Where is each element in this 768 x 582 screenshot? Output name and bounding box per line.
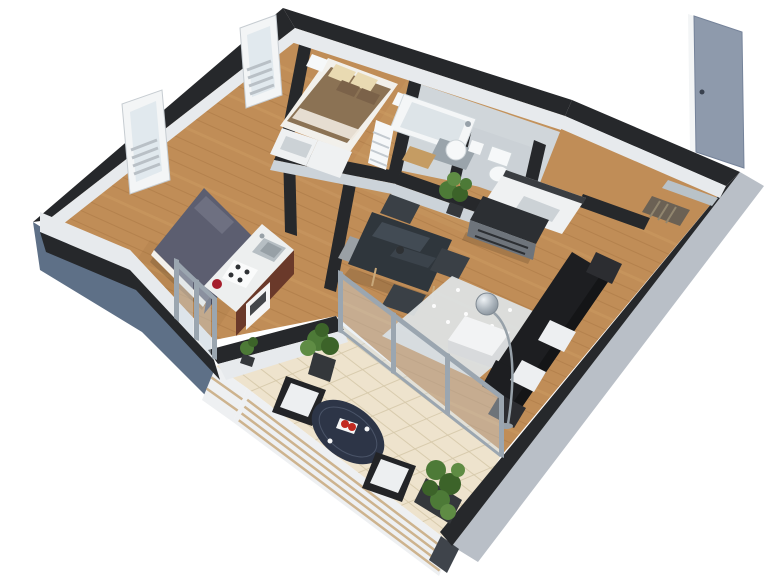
plant-foliage (300, 340, 316, 356)
burner-1 (236, 265, 241, 270)
floorplan-render (0, 0, 768, 582)
arc-lamp-dome (476, 293, 498, 315)
rug-dot (464, 312, 468, 316)
planter-foliage (422, 480, 438, 496)
plant-foliage (315, 323, 329, 337)
glass-door-post (194, 278, 199, 341)
burner-2 (245, 270, 250, 275)
entry-door (688, 14, 744, 168)
cup (365, 427, 370, 432)
cup (328, 439, 333, 444)
plant-foliage (447, 172, 461, 186)
glass-door-post (445, 352, 450, 416)
window-2 (240, 15, 282, 108)
rug-dot (508, 308, 512, 312)
glass-door-post (338, 270, 343, 334)
plant-foliage (248, 337, 258, 347)
plant-foliage (321, 337, 339, 355)
washbasin (446, 140, 466, 160)
rug-dot (432, 304, 436, 308)
rug-dot (446, 320, 450, 324)
glass-door-post (499, 394, 504, 458)
planter-foliage (440, 504, 456, 520)
glass-door-post (212, 296, 217, 360)
burner-3 (229, 273, 234, 278)
table-centerpiece (396, 246, 404, 254)
door-handle (700, 90, 705, 95)
apartment-3d-floorplan (0, 0, 768, 582)
glass-door-post (391, 311, 396, 375)
kitchen-faucet (260, 234, 265, 239)
tub-faucet (465, 121, 471, 127)
window-1 (122, 90, 170, 194)
burner-4 (238, 278, 243, 283)
planter-foliage (451, 463, 465, 477)
rug-dot (456, 288, 460, 292)
apple (341, 420, 349, 428)
apple (348, 423, 356, 431)
red-kettle (212, 279, 222, 289)
plant-foliage (460, 178, 472, 190)
